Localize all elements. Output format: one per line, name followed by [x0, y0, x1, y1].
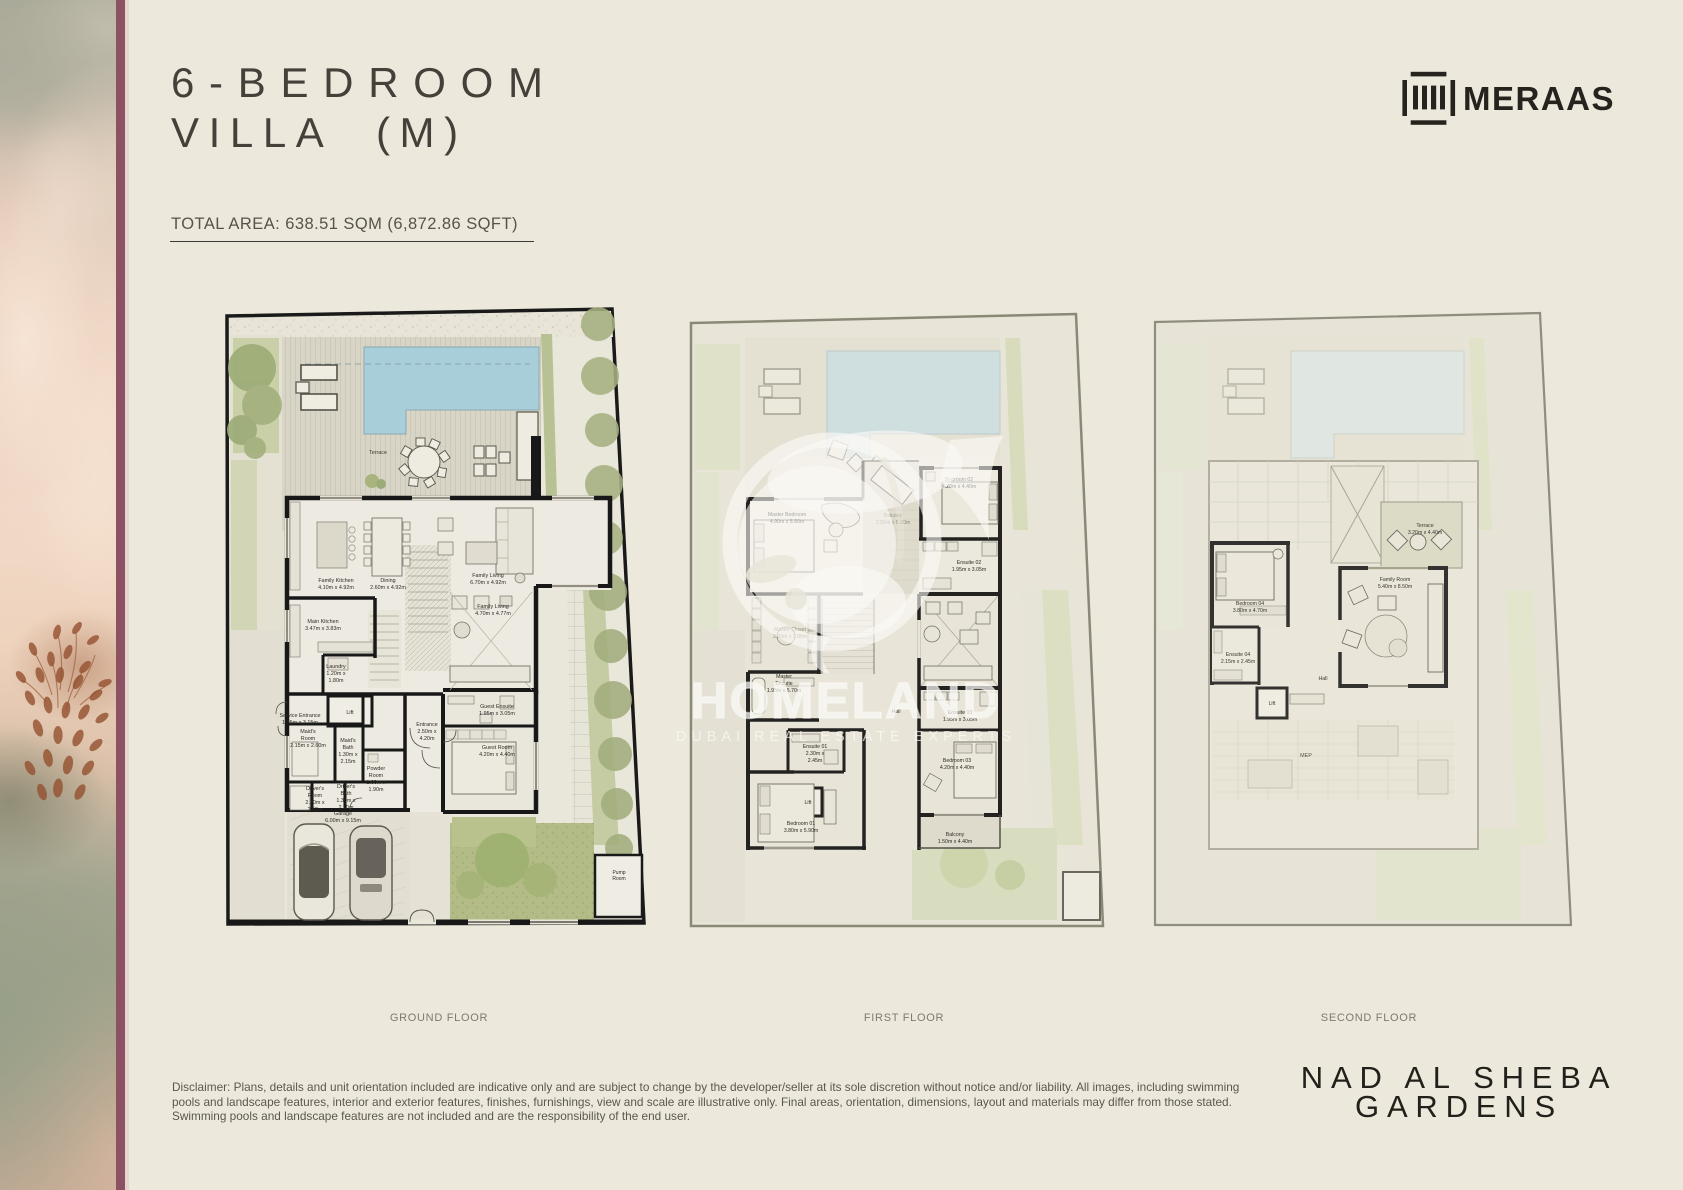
- svg-text:2.15m: 2.15m: [341, 759, 356, 765]
- svg-text:1.30m x: 1.30m x: [338, 752, 357, 758]
- svg-text:Entrance: Entrance: [416, 722, 438, 728]
- svg-text:1.20m x: 1.20m x: [326, 671, 345, 677]
- svg-text:Maid's: Maid's: [300, 729, 316, 735]
- svg-text:5.40m x 8.50m: 5.40m x 8.50m: [1378, 584, 1412, 590]
- svg-text:4.10m x 4.92m: 4.10m x 4.92m: [318, 585, 354, 591]
- svg-text:Driver's: Driver's: [337, 784, 355, 790]
- svg-text:2.60m x 4.92m: 2.60m x 4.92m: [370, 585, 406, 591]
- svg-text:1.80m: 1.80m: [329, 678, 344, 684]
- svg-text:1.95m x 3.15m: 1.95m x 3.15m: [282, 720, 318, 726]
- svg-text:Main Kitchen: Main Kitchen: [307, 619, 338, 625]
- svg-text:2.20m x: 2.20m x: [305, 800, 324, 806]
- svg-text:Ensuite 04: Ensuite 04: [1226, 652, 1251, 658]
- svg-text:Guest Ensuite: Guest Ensuite: [480, 704, 514, 710]
- svg-text:4.20m: 4.20m: [420, 736, 435, 742]
- svg-text:3.80m x 4.70m: 3.80m x 4.70m: [1233, 608, 1267, 614]
- svg-text:DUBAI REAL ESTATE EXPERTS: DUBAI REAL ESTATE EXPERTS: [676, 729, 1016, 745]
- svg-text:4.20m x 4.40m: 4.20m x 4.40m: [479, 752, 515, 758]
- svg-text:Maid's: Maid's: [340, 738, 356, 744]
- svg-text:2.50m x: 2.50m x: [417, 729, 436, 735]
- svg-text:6.00m x 9.15m: 6.00m x 9.15m: [325, 818, 361, 824]
- svg-text:3.20m x 4.40m: 3.20m x 4.40m: [1408, 530, 1442, 536]
- svg-text:4.20m x 4.40m: 4.20m x 4.40m: [940, 765, 974, 771]
- svg-text:Family Room: Family Room: [1380, 577, 1411, 583]
- svg-text:2.45m: 2.45m: [808, 758, 822, 764]
- svg-text:Bath: Bath: [340, 791, 351, 797]
- svg-text:Room: Room: [369, 773, 384, 779]
- svg-text:Laundry: Laundry: [326, 664, 346, 670]
- svg-text:Bath: Bath: [342, 745, 353, 751]
- svg-text:2.15m x 2.45m: 2.15m x 2.45m: [1221, 659, 1255, 665]
- svg-text:Bedroom 01: Bedroom 01: [787, 821, 815, 827]
- svg-text:1.60m x: 1.60m x: [366, 780, 385, 786]
- svg-text:Guest Room: Guest Room: [482, 745, 513, 751]
- svg-text:Balcony: Balcony: [946, 832, 965, 838]
- svg-text:MEP: MEP: [1300, 753, 1312, 759]
- svg-text:2.50m: 2.50m: [308, 807, 323, 813]
- svg-text:Service Entrance: Service Entrance: [279, 713, 320, 719]
- svg-text:Lift: Lift: [805, 800, 812, 806]
- svg-text:1.95m x 3.05m: 1.95m x 3.05m: [479, 711, 515, 717]
- svg-text:Garage: Garage: [334, 811, 352, 817]
- svg-text:6.70m x 4.92m: 6.70m x 4.92m: [470, 580, 506, 586]
- svg-text:Lift: Lift: [346, 710, 354, 716]
- svg-text:Room: Room: [308, 793, 323, 799]
- svg-text:3.80m x 5.90m: 3.80m x 5.90m: [784, 828, 818, 834]
- svg-text:1.30m x: 1.30m x: [336, 798, 355, 804]
- svg-text:Hall: Hall: [1319, 676, 1328, 682]
- svg-text:Lift: Lift: [1269, 701, 1276, 707]
- svg-text:Bedroom 03: Bedroom 03: [943, 758, 971, 764]
- svg-text:3.47m x 3.83m: 3.47m x 3.83m: [305, 626, 341, 632]
- svg-text:4.70m x 4.77m: 4.70m x 4.77m: [475, 611, 511, 617]
- svg-text:Dining: Dining: [380, 578, 395, 584]
- svg-text:Driver's: Driver's: [306, 786, 324, 792]
- svg-text:1.90m: 1.90m: [369, 787, 384, 793]
- svg-text:Family Living: Family Living: [477, 604, 508, 610]
- svg-text:Powder: Powder: [367, 766, 385, 772]
- svg-text:MERAAS: MERAAS: [1463, 80, 1615, 117]
- svg-text:Family Living: Family Living: [472, 573, 503, 579]
- svg-text:Room: Room: [301, 736, 316, 742]
- svg-text:Terrace: Terrace: [1416, 523, 1433, 529]
- svg-text:Family Kitchen: Family Kitchen: [318, 578, 353, 584]
- svg-text:HOMELAND: HOMELAND: [691, 672, 1002, 729]
- svg-text:1.50m x 4.40m: 1.50m x 4.40m: [938, 839, 972, 845]
- svg-text:Room: Room: [612, 876, 625, 882]
- svg-text:2.15m x 2.60m: 2.15m x 2.60m: [290, 743, 326, 749]
- svg-text:Bedroom 04: Bedroom 04: [1236, 601, 1264, 607]
- svg-text:Terrace: Terrace: [369, 450, 387, 456]
